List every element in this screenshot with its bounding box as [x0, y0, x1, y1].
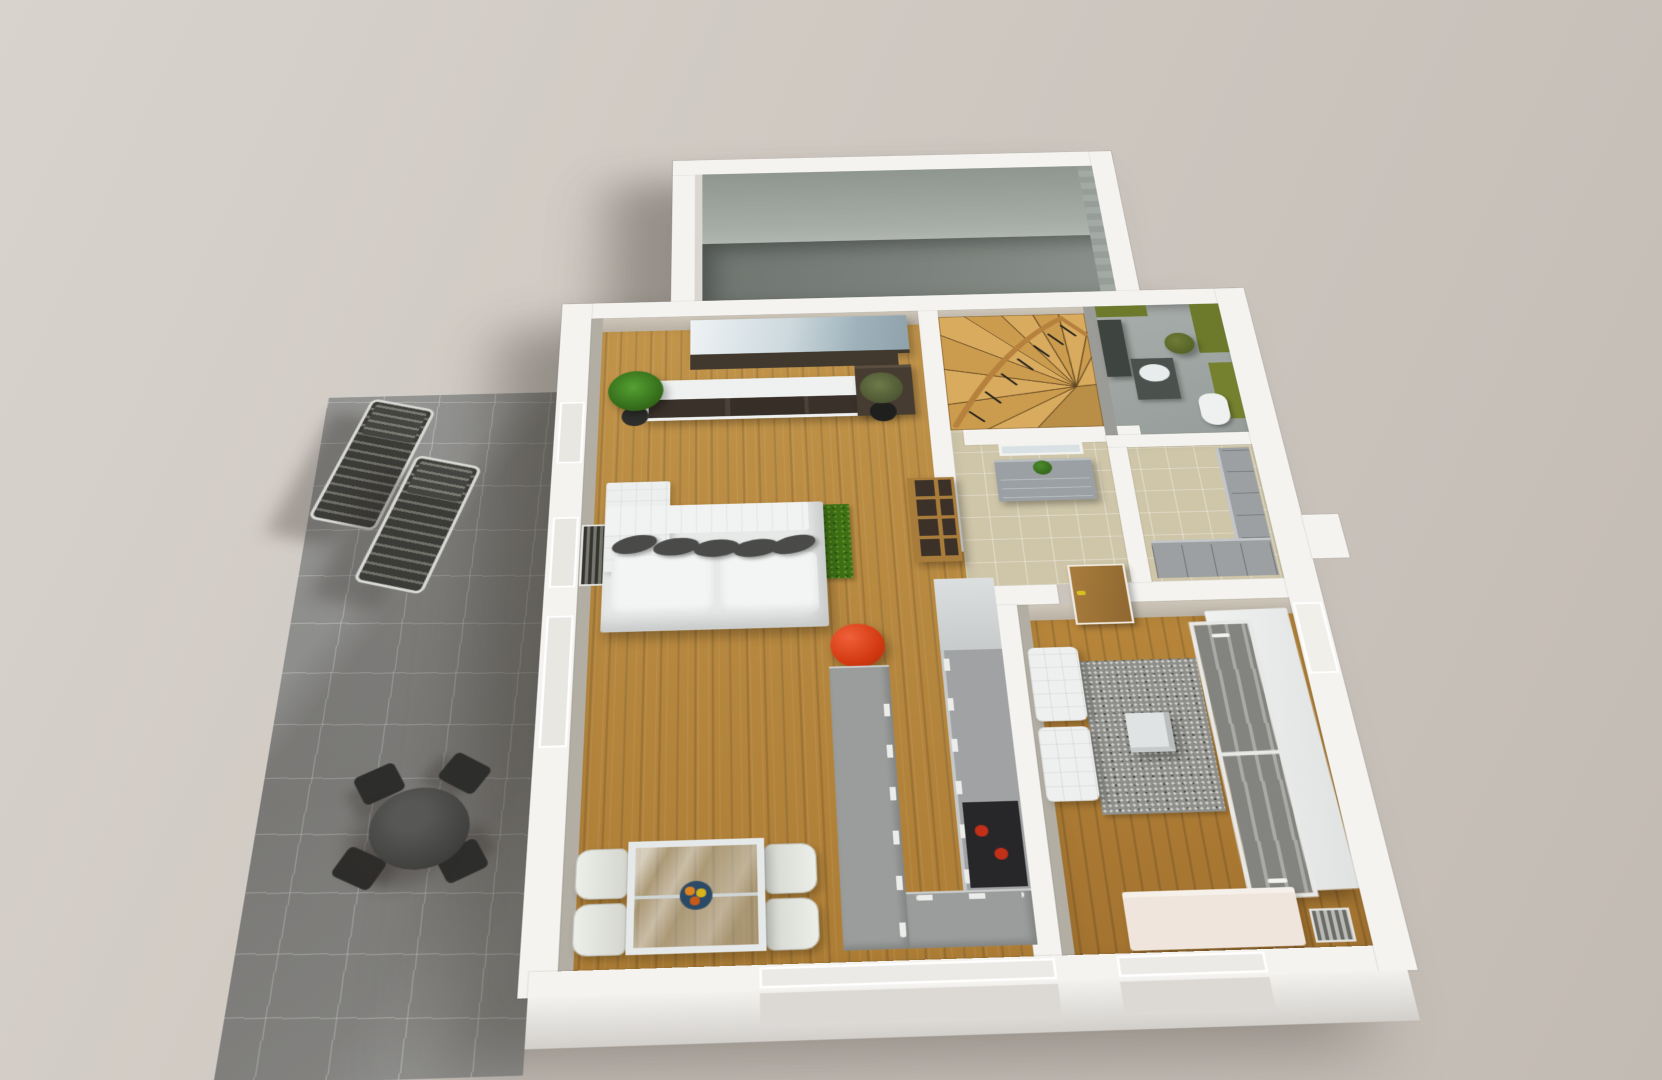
daybed-cushion [1037, 726, 1100, 802]
west-window [556, 402, 585, 464]
door-handle-yellow [1076, 591, 1086, 596]
dining-chair [764, 843, 818, 895]
oven-dark [962, 801, 1028, 888]
wardrobe-door-lines [1152, 542, 1280, 578]
lowboard-glass-front [648, 394, 888, 418]
lounger-headrest [361, 403, 428, 443]
sofa-back-top [604, 502, 809, 535]
dining-chair [765, 897, 820, 951]
floor-plan-3d [29, 131, 1610, 1080]
west-window [549, 517, 579, 588]
sofa-seat-right [720, 551, 820, 615]
garage-wall-left [671, 160, 695, 301]
winder-staircase [938, 314, 1104, 431]
render-viewport [0, 0, 1662, 1080]
garage-concrete-floor [695, 235, 1117, 301]
dresser-drawer-lines [1000, 472, 1093, 498]
wall-mirror [998, 442, 1083, 456]
bedroom-radiator [1309, 907, 1357, 942]
white-cube-table [1125, 712, 1177, 753]
wardrobe-divider [1222, 750, 1280, 756]
oven-red-pot [974, 825, 989, 837]
bathroom-green-wall-top [1095, 305, 1148, 317]
hall-door-wood [1067, 564, 1135, 625]
fruit-orange [685, 886, 695, 895]
fruit-red [690, 896, 700, 905]
kitchen-tall-white-cabinet [934, 577, 1002, 650]
dining-chair [571, 903, 626, 957]
wardrobe-handle [1211, 633, 1230, 637]
dining-chair [574, 848, 628, 900]
tv-unit-gloss-top [690, 315, 910, 358]
facade-window-shadow [760, 984, 1062, 1025]
garage-left-wall-face [695, 175, 703, 302]
garage-far-wall-face [695, 166, 1105, 245]
cream-bed [1122, 887, 1307, 951]
lounger-headrest [406, 460, 474, 503]
garage-interior [695, 166, 1117, 301]
sofa-seat-left [610, 554, 714, 618]
wardrobe-handle [1267, 878, 1288, 883]
closet-wardrobe-low [1151, 537, 1279, 578]
oven-red-pot [994, 848, 1009, 860]
facade-window-shadow [1120, 977, 1276, 1013]
cubby-shelf [907, 477, 963, 562]
